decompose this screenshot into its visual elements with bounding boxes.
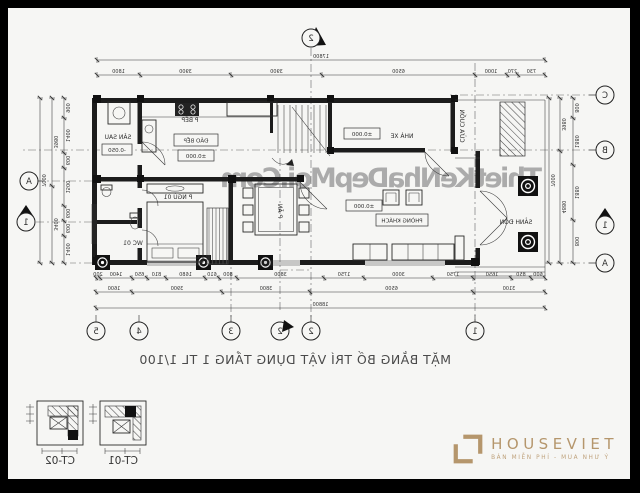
washing-machine bbox=[108, 102, 130, 124]
svg-text:ĐẢO BẾP: ĐẢO BẾP bbox=[183, 137, 208, 145]
bed bbox=[147, 202, 203, 262]
dim-chain-bottom-total: 18800 bbox=[94, 302, 547, 311]
grid-bubble-1: 1 bbox=[466, 315, 484, 340]
svg-text:B: B bbox=[602, 146, 608, 156]
garage-level-label: ±0.000 bbox=[344, 128, 380, 139]
wash-basin bbox=[102, 188, 111, 197]
logo-name: HOUSEVIET bbox=[491, 437, 618, 452]
dim-chain-right-mid: 39803400 bbox=[49, 96, 58, 265]
dim-label: 1400 bbox=[64, 243, 70, 256]
sink bbox=[145, 125, 153, 133]
column-detail-ct01: CT-01 bbox=[89, 401, 146, 467]
grid-bubble-3: 3 bbox=[222, 315, 240, 340]
dim-label: 600 bbox=[64, 156, 70, 166]
dim-label: 810 bbox=[152, 272, 162, 278]
dresser bbox=[147, 184, 203, 193]
dim-chain-left-mid: 39804880 bbox=[557, 96, 566, 265]
dim-chain-top: 73027010006500390039001800 bbox=[95, 69, 547, 78]
dim-label: 1750 bbox=[447, 272, 460, 278]
dim-chain-bottom-fine: 6008501650175030001750380080061016808106… bbox=[93, 272, 547, 281]
dim-label: 3980 bbox=[560, 118, 566, 131]
dim-chain-left-inner: 80018801880800 bbox=[570, 96, 579, 265]
dim-label: 7000 bbox=[549, 174, 555, 187]
mirrored-plan-group: ThietKeNhaDepMoi.Com bbox=[17, 27, 614, 467]
ct02-label: CT-02 bbox=[45, 455, 75, 467]
dim-label: 1800 bbox=[112, 69, 125, 75]
dim-label: 1880 bbox=[573, 186, 579, 199]
grid-bubble-A-left: A bbox=[589, 254, 614, 272]
logo-tagline: BÁN MIỄN PHÍ - MUA NHƯ Ý bbox=[491, 455, 618, 461]
grid-bubble-4: 4 bbox=[130, 315, 148, 340]
svg-text:3: 3 bbox=[228, 327, 233, 337]
dim-label: 3100 bbox=[503, 286, 516, 292]
dim-label: 3900 bbox=[179, 69, 192, 75]
svg-text:2: 2 bbox=[277, 327, 282, 337]
svg-text:1: 1 bbox=[23, 218, 28, 228]
dim-label: 6500 bbox=[385, 286, 398, 292]
kitchen-counter bbox=[227, 102, 277, 116]
label-garage: NHÀ XE bbox=[390, 133, 413, 140]
svg-text:1: 1 bbox=[472, 327, 477, 337]
label-dining: P ĂN bbox=[276, 204, 283, 218]
label-kitchen: P BẾP bbox=[181, 116, 198, 124]
dim-label: 610 bbox=[207, 272, 217, 278]
dim-label: 18800 bbox=[313, 302, 329, 308]
dim-label: 900 bbox=[64, 103, 70, 113]
section-mark-1-right: 1 bbox=[17, 205, 35, 231]
grid-bubble-2b-section: 2 bbox=[271, 320, 294, 340]
svg-text:±0.000: ±0.000 bbox=[351, 132, 372, 138]
screenshot-root: { "colors":{"frame":"#000000","paper":"#… bbox=[0, 0, 640, 493]
wardrobe bbox=[207, 208, 228, 264]
svg-text:A: A bbox=[602, 259, 608, 269]
svg-text:-0.050: -0.050 bbox=[108, 148, 126, 154]
dim-label: 1650 bbox=[486, 272, 499, 278]
dim-label: 3800 bbox=[274, 272, 287, 278]
section-mark-2-top: 2 bbox=[302, 27, 326, 47]
label-backyard: SÂN SAU bbox=[105, 134, 132, 141]
grid-bubble-5: 5 bbox=[87, 315, 105, 340]
label-bedroom: P NGỦ 01 bbox=[164, 193, 193, 201]
dim-label: 800 bbox=[573, 237, 579, 247]
dim-label: 1880 bbox=[573, 135, 579, 148]
svg-text:±0.000: ±0.000 bbox=[353, 204, 374, 210]
svg-text:4: 4 bbox=[136, 327, 141, 337]
dim-label: 650 bbox=[135, 272, 145, 278]
dim-label: 800 bbox=[573, 103, 579, 113]
dim-label: 1600 bbox=[108, 286, 121, 292]
dim-label: 1680 bbox=[179, 272, 192, 278]
dim-label: 1000 bbox=[485, 69, 498, 75]
entry-ramp-hatch bbox=[500, 102, 525, 156]
grid-bubble-2: 2 bbox=[302, 315, 320, 340]
dim-label: 6500 bbox=[392, 69, 405, 75]
dim-label: 3400 bbox=[52, 218, 58, 231]
drawing-paper: ThietKeNhaDepMoi.Com bbox=[8, 8, 630, 479]
dim-label: 800 bbox=[223, 272, 233, 278]
svg-text:A: A bbox=[26, 177, 32, 187]
sofa-side-table bbox=[455, 236, 464, 260]
dim-label: 600 bbox=[64, 209, 70, 219]
label-entry-hall: SẢNH ĐÓN bbox=[500, 218, 533, 226]
dim-label: 1400 bbox=[110, 272, 123, 278]
dim-chain-right-inner: 900140060015006006001400 bbox=[61, 96, 70, 265]
dim-label: 3900 bbox=[171, 286, 184, 292]
column-detail-ct02: CT-02 bbox=[26, 401, 83, 467]
dim-chain-left-total: 7000 bbox=[546, 96, 555, 265]
drawing-title: MẶT BẰNG BỐ TRÍ VẬT DỤNG TẦNG 1 TL 1/100 bbox=[139, 351, 451, 367]
dim-label: 270 bbox=[508, 69, 518, 75]
dim-label: 730 bbox=[527, 69, 537, 75]
living-room-label: PHÒNG KHÁCH bbox=[376, 214, 428, 226]
houseviet-logo-icon bbox=[452, 433, 484, 465]
dim-label: 200 bbox=[93, 272, 103, 278]
dim-label: 17800 bbox=[313, 54, 329, 60]
kitchen-island-label: ĐẢO BẾP bbox=[174, 134, 218, 146]
dim-label: 600 bbox=[64, 224, 70, 234]
svg-text:2: 2 bbox=[308, 327, 313, 337]
stairs bbox=[272, 105, 330, 166]
stove bbox=[175, 103, 199, 116]
svg-text:±0.000: ±0.000 bbox=[185, 154, 206, 160]
dim-label: 850 bbox=[516, 272, 526, 278]
kitchen-level-label: ±0.000 bbox=[178, 150, 214, 161]
svg-text:PHÒNG KHÁCH: PHÒNG KHÁCH bbox=[381, 218, 422, 225]
grid-bubble-B: B bbox=[589, 141, 614, 159]
houseviet-logo: HOUSEVIET BÁN MIỄN PHÍ - MUA NHƯ Ý bbox=[452, 433, 618, 465]
ct01-label: CT-01 bbox=[108, 455, 138, 467]
dim-label: 3000 bbox=[392, 272, 405, 278]
living-level-label: ±0.000 bbox=[346, 200, 382, 211]
label-wc: WC 01 bbox=[123, 240, 143, 247]
svg-text:C: C bbox=[602, 91, 608, 101]
svg-text:2: 2 bbox=[308, 34, 313, 44]
dim-label: 7000 bbox=[40, 174, 46, 187]
dim-label: 1400 bbox=[64, 129, 70, 142]
dim-label: 3900 bbox=[270, 69, 283, 75]
dim-label: 600 bbox=[533, 272, 543, 278]
floor-plan-canvas: ThietKeNhaDepMoi.Com bbox=[8, 8, 630, 479]
grid-bubble-C: C bbox=[589, 86, 614, 104]
dim-label: 1750 bbox=[338, 272, 351, 278]
dim-chain-bottom-mid: 31006500380039001600 bbox=[94, 286, 547, 295]
svg-text:5: 5 bbox=[93, 327, 98, 337]
label-rolling-door: CỬA CUỐN bbox=[458, 109, 466, 142]
svg-text:1: 1 bbox=[602, 221, 607, 231]
dim-label: 4880 bbox=[560, 201, 566, 214]
dim-chain-top-total: 17800 bbox=[95, 54, 547, 63]
dim-label: 1500 bbox=[64, 181, 70, 194]
backyard-level-label: -0.050 bbox=[102, 144, 132, 155]
section-mark-1-left: 1 bbox=[596, 208, 614, 234]
dim-label: 3980 bbox=[52, 136, 58, 149]
dim-label: 3800 bbox=[260, 286, 273, 292]
